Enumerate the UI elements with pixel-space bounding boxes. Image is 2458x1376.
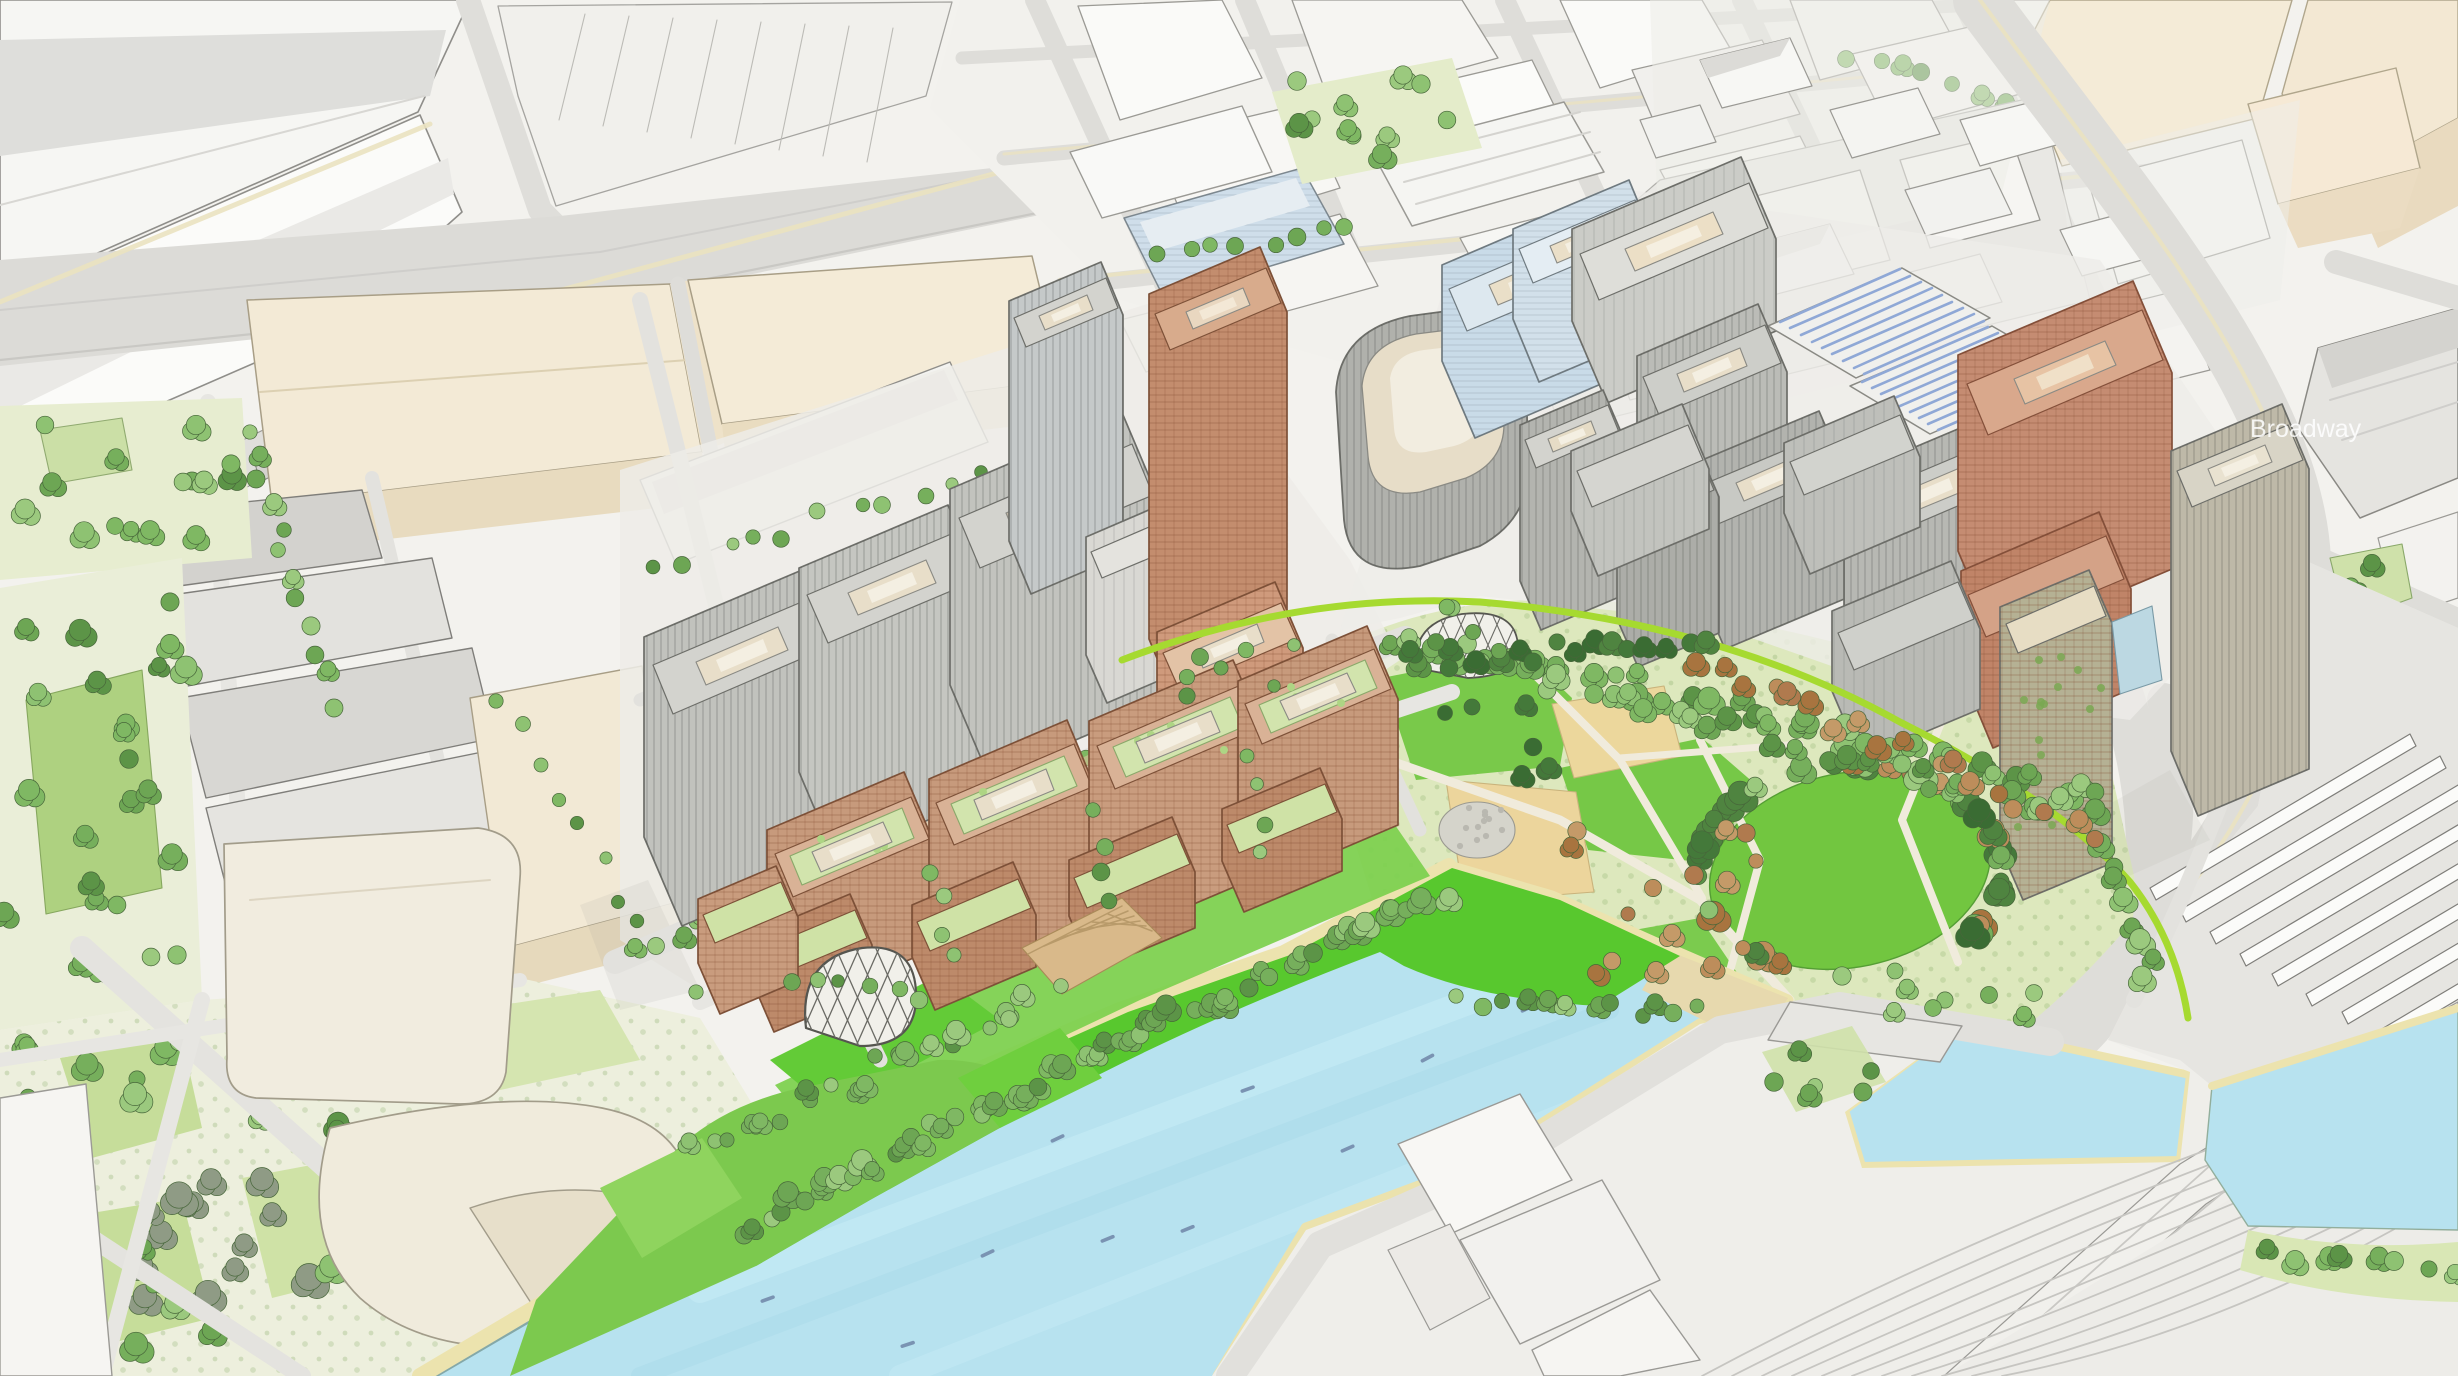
svg-text:Broadway: Broadway	[2250, 415, 2362, 443]
